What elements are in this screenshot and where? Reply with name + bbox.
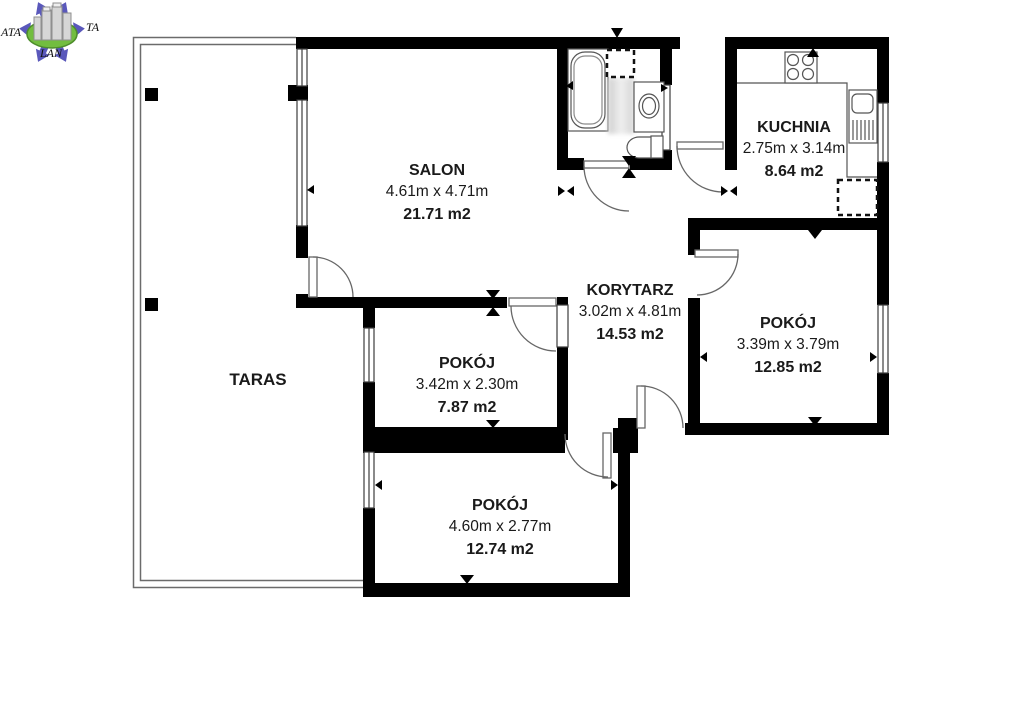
agency-logo: ATA TA LAN — [0, 0, 104, 64]
room-name: TARAS — [208, 369, 308, 390]
room-dimensions: 4.61m x 4.71m — [337, 181, 537, 203]
room-label-pokoj-bottom: POKÓJ 4.60m x 2.77m 12.74 m2 — [400, 495, 600, 562]
bathroom-door — [584, 161, 629, 211]
room-name: KUCHNIA — [714, 117, 874, 138]
room-area: 14.53 m2 — [544, 323, 716, 347]
washing-machine — [634, 82, 664, 132]
pillar — [145, 88, 158, 101]
room-dimensions: 3.39m x 3.79m — [698, 334, 878, 356]
room-name: POKÓJ — [698, 313, 878, 334]
bathroom-fixtures — [568, 49, 664, 158]
dashed-appliance-slot — [607, 50, 634, 77]
dashed-fridge-slot — [838, 180, 877, 215]
room-label-taras: TARAS — [208, 369, 308, 390]
room-label-pokoj-middle: POKÓJ 3.42m x 2.30m 7.87 m2 — [377, 353, 557, 420]
pillar — [145, 298, 158, 311]
terrace-outline — [134, 38, 366, 588]
bottom-room-door — [565, 433, 611, 478]
toilet — [627, 136, 663, 158]
logo-text-bottom: LAN — [39, 46, 63, 60]
room-dimensions: 4.60m x 2.77m — [400, 516, 600, 538]
salon-balcony-window — [297, 100, 307, 226]
room-label-korytarz: KORYTARZ 3.02m x 4.81m 14.53 m2 — [544, 280, 716, 347]
room-area: 12.74 m2 — [400, 538, 600, 562]
room-area: 7.87 m2 — [377, 396, 557, 420]
right-room-window — [878, 305, 888, 373]
room-label-pokoj-right: POKÓJ 3.39m x 3.79m 12.85 m2 — [698, 313, 878, 380]
room-dimensions: 2.75m x 3.14m — [714, 138, 874, 160]
room-area: 12.85 m2 — [698, 356, 878, 380]
balcony-door — [309, 257, 353, 297]
room-name: POKÓJ — [377, 353, 557, 374]
room-area: 8.64 m2 — [714, 160, 874, 184]
middle-room-window — [364, 328, 374, 382]
entrance-door — [637, 386, 683, 428]
floor-plan-canvas: ATA TA LAN SALON 4.61m x 4.71m 21.71 m2 … — [0, 0, 1024, 724]
logo-text-right: TA — [86, 20, 100, 34]
bottom-room-window — [364, 452, 374, 508]
salon-window-upper — [297, 49, 307, 86]
room-area: 21.71 m2 — [337, 203, 537, 227]
room-dimensions: 3.42m x 2.30m — [377, 374, 557, 396]
room-dimensions: 3.02m x 4.81m — [544, 301, 716, 323]
bathtub — [568, 49, 608, 131]
room-name: SALON — [337, 160, 537, 181]
blurred-area — [608, 78, 634, 134]
kitchen-window — [878, 103, 888, 162]
room-label-salon: SALON 4.61m x 4.71m 21.71 m2 — [337, 160, 537, 227]
terrace-pillars — [145, 88, 158, 311]
room-name: KORYTARZ — [544, 280, 716, 301]
room-name: POKÓJ — [400, 495, 600, 516]
logo-text-left: ATA — [0, 25, 22, 39]
room-label-kuchnia: KUCHNIA 2.75m x 3.14m 8.64 m2 — [714, 117, 874, 184]
